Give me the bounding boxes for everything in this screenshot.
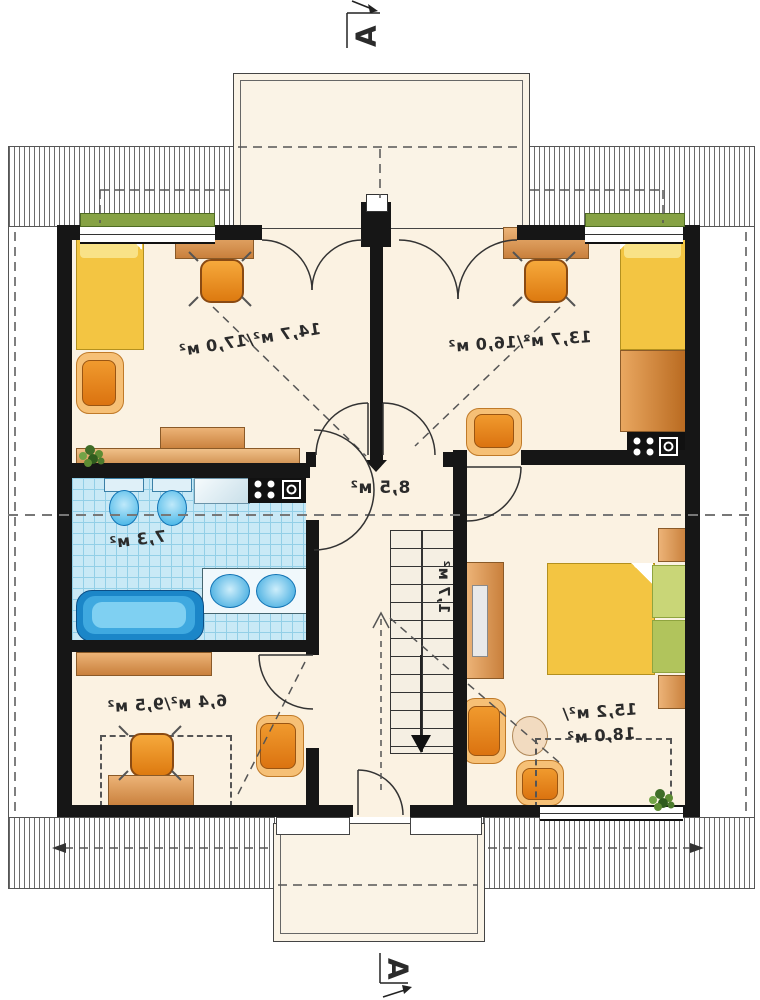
ceiling-slope-lines [213,307,560,798]
section-mark-letter-top: А [350,21,383,53]
balcony-door-arc [262,240,312,290]
stairs-direction [373,613,431,790]
media-cabinet-icons [634,438,678,456]
bedroom1-door-arc [316,403,368,455]
floor-plan: 14,7 м²/17,0 м² 13,7 м²/16,0 м² 8,5 м² 7… [0,0,760,1000]
plant-icon [79,445,105,467]
balcony-door-arc [312,240,362,290]
stairs-area-label: 1,7 м² [433,547,453,627]
room-area-label: 8,5 м² [330,478,430,498]
eaves-arrows [52,843,704,853]
bedroom4-door-arc [467,467,521,521]
balcony-door-arc [399,240,458,299]
linework-overlay [0,0,760,1000]
balcony-door-arc [458,240,517,299]
section-mark-letter-bottom: А [382,953,415,985]
washer-icon [255,481,301,499]
stairs-down-arrow [411,735,431,753]
plant-icon [649,789,675,811]
bedroom2-door-arc [383,403,435,455]
